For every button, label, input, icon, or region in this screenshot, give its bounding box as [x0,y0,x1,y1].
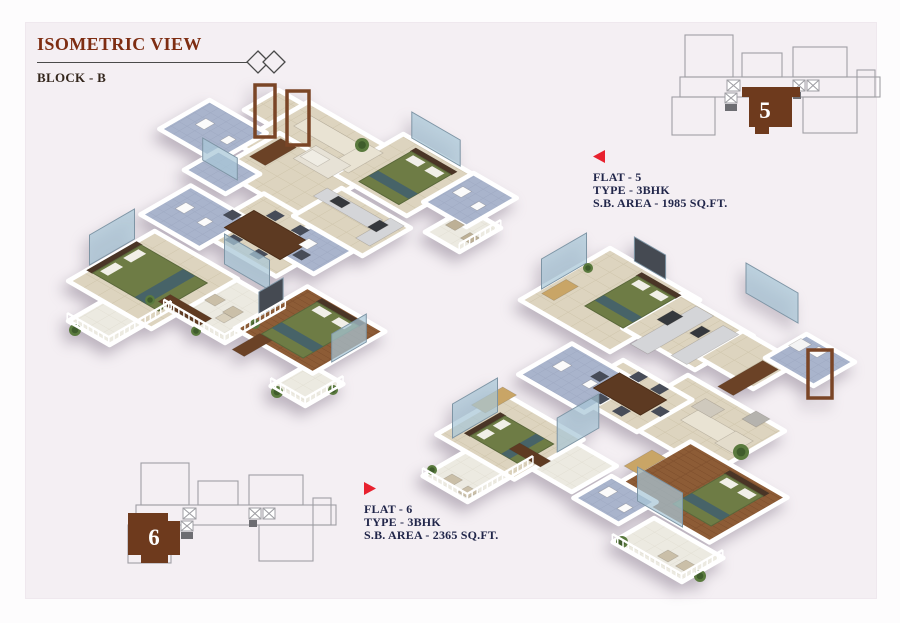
plant [193,328,199,334]
flat5-isometric-plan [67,85,517,406]
flat5-marker-arrow-icon [593,150,605,163]
plant [358,141,366,149]
plant [585,265,591,271]
flat6-key-plan: 6 [128,463,336,563]
plant [737,448,746,457]
flat5-info: FLAT - 5 TYPE - 3BHK S.B. AREA - 1985 SQ… [593,171,727,210]
title-diamonds-icon [247,51,285,73]
flat6-info: FLAT - 6 TYPE - 3BHK S.B. AREA - 2365 SQ… [364,503,498,542]
flat6-area: S.B. AREA - 2365 SQ.FT. [364,529,498,542]
flat6-marker-arrow-icon [364,482,376,495]
brochure-canvas: ISOMETRIC VIEW BLOCK - B [0,0,900,623]
room-floor-bath [765,334,855,386]
key-plan-unit5-number: 5 [759,98,771,123]
key-plan-unit6-number: 6 [148,525,160,550]
plant [147,297,153,303]
flat5-key-plan: 5 [672,35,880,135]
key-plan-unit5-highlight [742,87,800,134]
glass-panel [746,263,798,323]
flat5-area: S.B. AREA - 1985 SQ.FT. [593,197,727,210]
